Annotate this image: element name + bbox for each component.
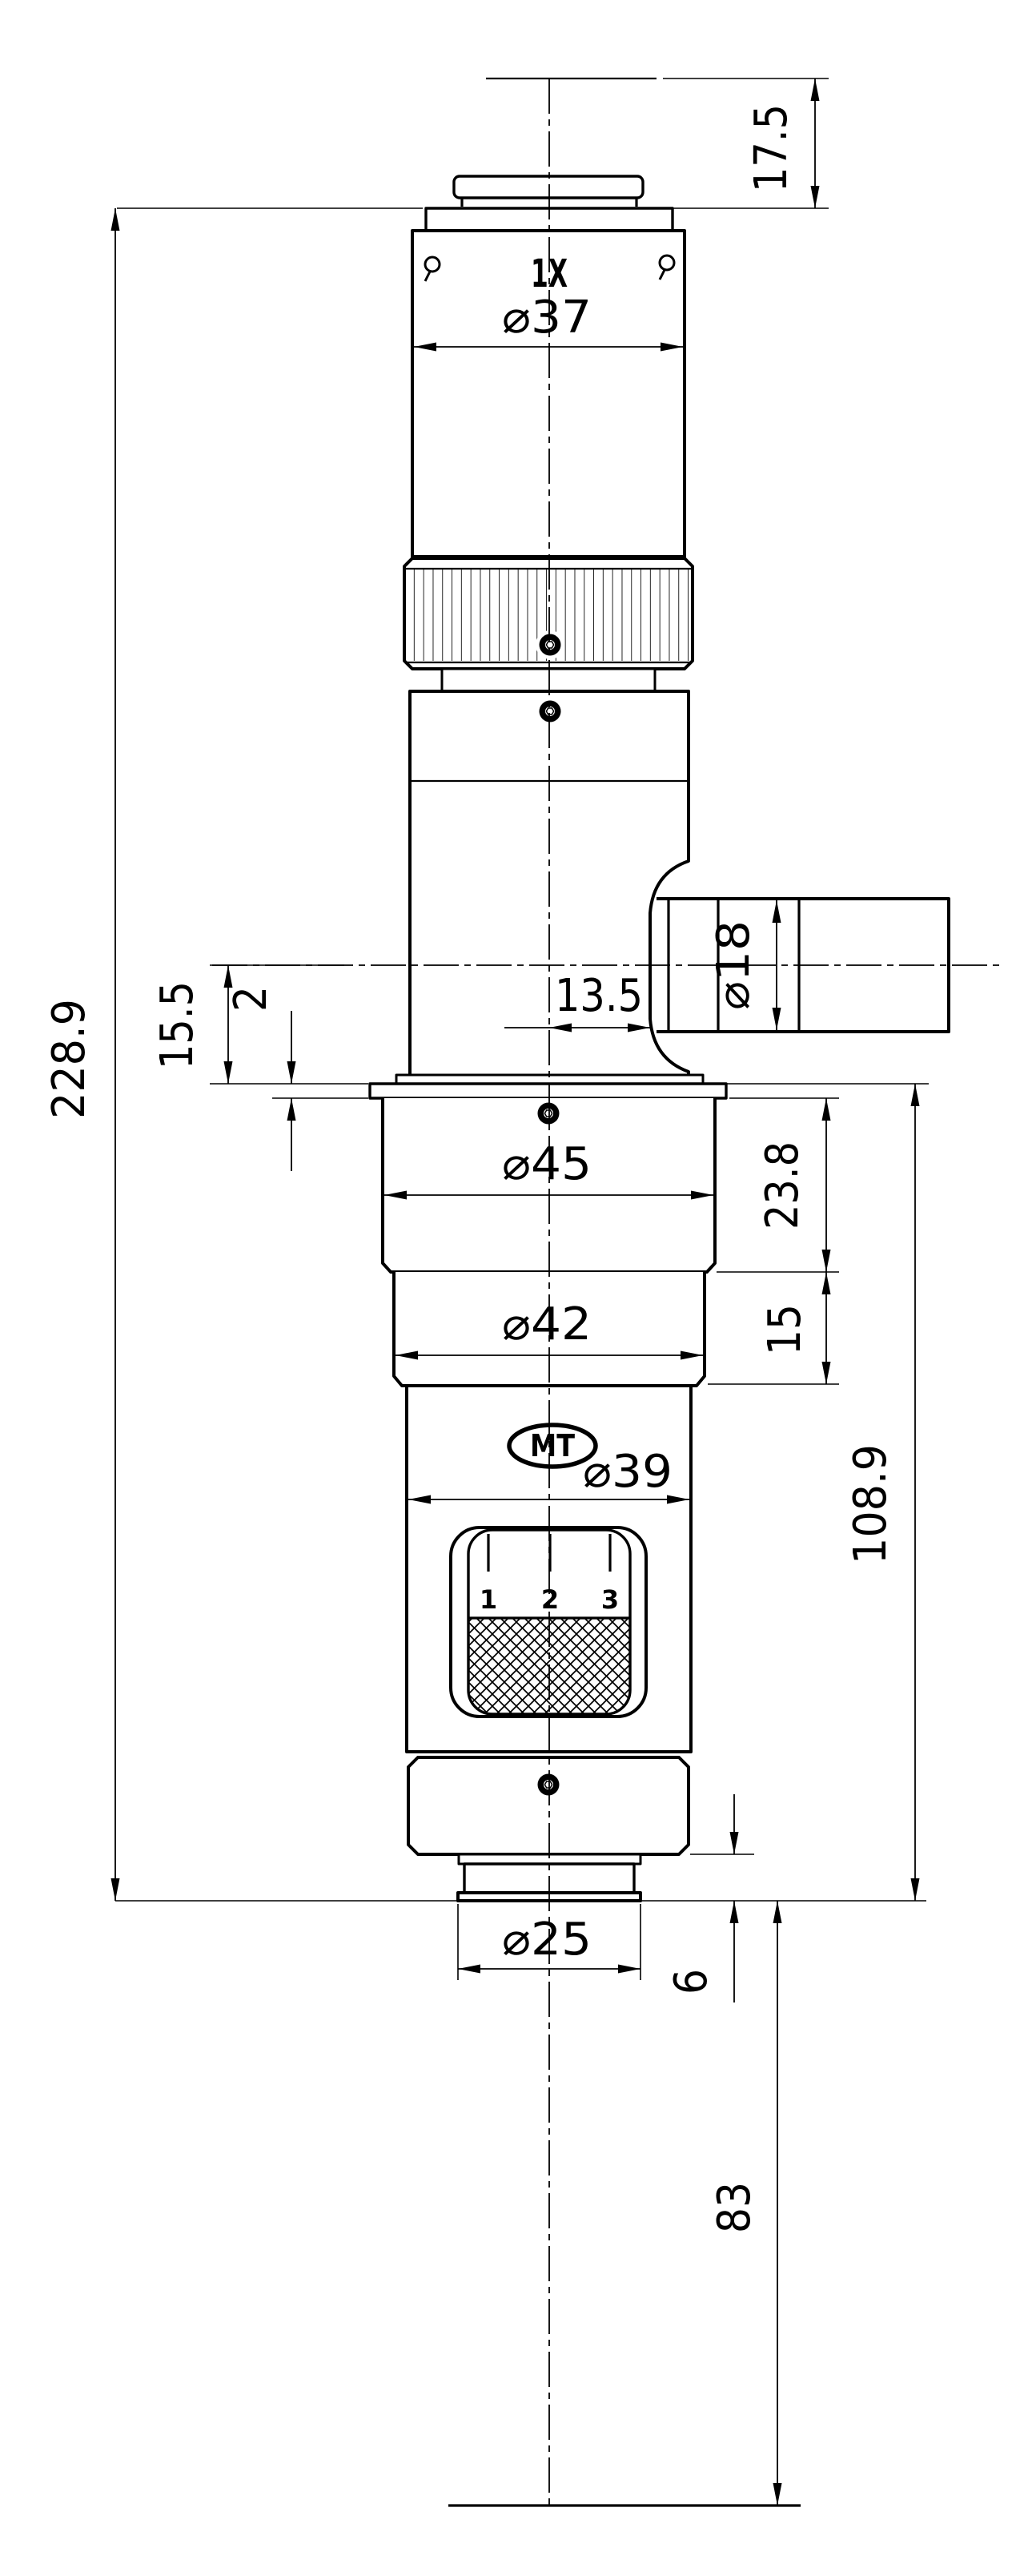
dim-label-83: 83 [709, 2182, 761, 2233]
dim-arrows [730, 1832, 739, 1923]
cap-ring [454, 176, 643, 198]
bottom-cap [408, 1757, 689, 1854]
zoom-scale-2: 2 [541, 1584, 559, 1615]
dim-label-dia18: ⌀18 [708, 920, 760, 1010]
neck-ring [442, 669, 655, 691]
drawing-sheet: 1X MT [0, 0, 1032, 2576]
bottom-cap-outline [408, 1757, 689, 1854]
dim-label-23-8: 23.8 [757, 1141, 809, 1230]
upper-barrel: 1X [412, 231, 685, 557]
lock-screw-icon [540, 634, 561, 656]
dim-label-6: 6 [665, 1969, 717, 1994]
flange-plate [370, 1084, 726, 1098]
ring45-screw-icon [538, 1103, 560, 1125]
bottom-cap-screw-icon [538, 1774, 560, 1796]
zoom-scale-1: 1 [480, 1584, 497, 1615]
dim-lower-ring-height: 15 [708, 1272, 839, 1384]
dim-arrows [287, 1061, 296, 1121]
dim-label-dia45: ⌀45 [502, 1138, 592, 1190]
dim-top-clearance: 17.5 [745, 78, 820, 208]
mounting-flange [370, 1075, 726, 1098]
housing-screw-icon [540, 701, 561, 722]
brand-logo-text: MT [530, 1428, 575, 1463]
dim-label-15-5: 15.5 [151, 981, 203, 1069]
dim-label-108-9: 108.9 [845, 1444, 897, 1564]
dim-label-2: 2 [225, 986, 277, 1012]
dim-label-dia39: ⌀39 [583, 1446, 673, 1498]
zoom-scale-3: 3 [601, 1584, 619, 1615]
zoom-window: 1 2 3 [451, 1527, 646, 1717]
dim-objective-tip-diameter: ⌀25 [458, 1904, 640, 1980]
dim-label-dia25: ⌀25 [502, 1914, 592, 1966]
dim-label-228-9: 228.9 [43, 999, 95, 1119]
dim-label-dia37: ⌀37 [502, 292, 592, 344]
dim-label-13-5: 13.5 [555, 970, 643, 1022]
dim-port-axis-to-flange: 15.5 [151, 965, 368, 1084]
neck-ring-body [442, 669, 655, 691]
focus-ring [404, 558, 693, 669]
dim-overall-length: 228.9 [43, 208, 423, 1901]
dim-mount-ring-height: 23.8 [717, 1098, 839, 1272]
technical-drawing: 1X MT [0, 0, 1032, 2576]
dim-label-15: 15 [759, 1304, 811, 1355]
dim-working-distance: 83 [709, 1901, 782, 2506]
dim-label-dia42: ⌀42 [502, 1298, 592, 1350]
dim-flange-to-tip: 108.9 [706, 1084, 929, 1901]
dim-label-17-5: 17.5 [745, 104, 797, 192]
dim-flange-lip-thickness: 2 [225, 986, 368, 1171]
